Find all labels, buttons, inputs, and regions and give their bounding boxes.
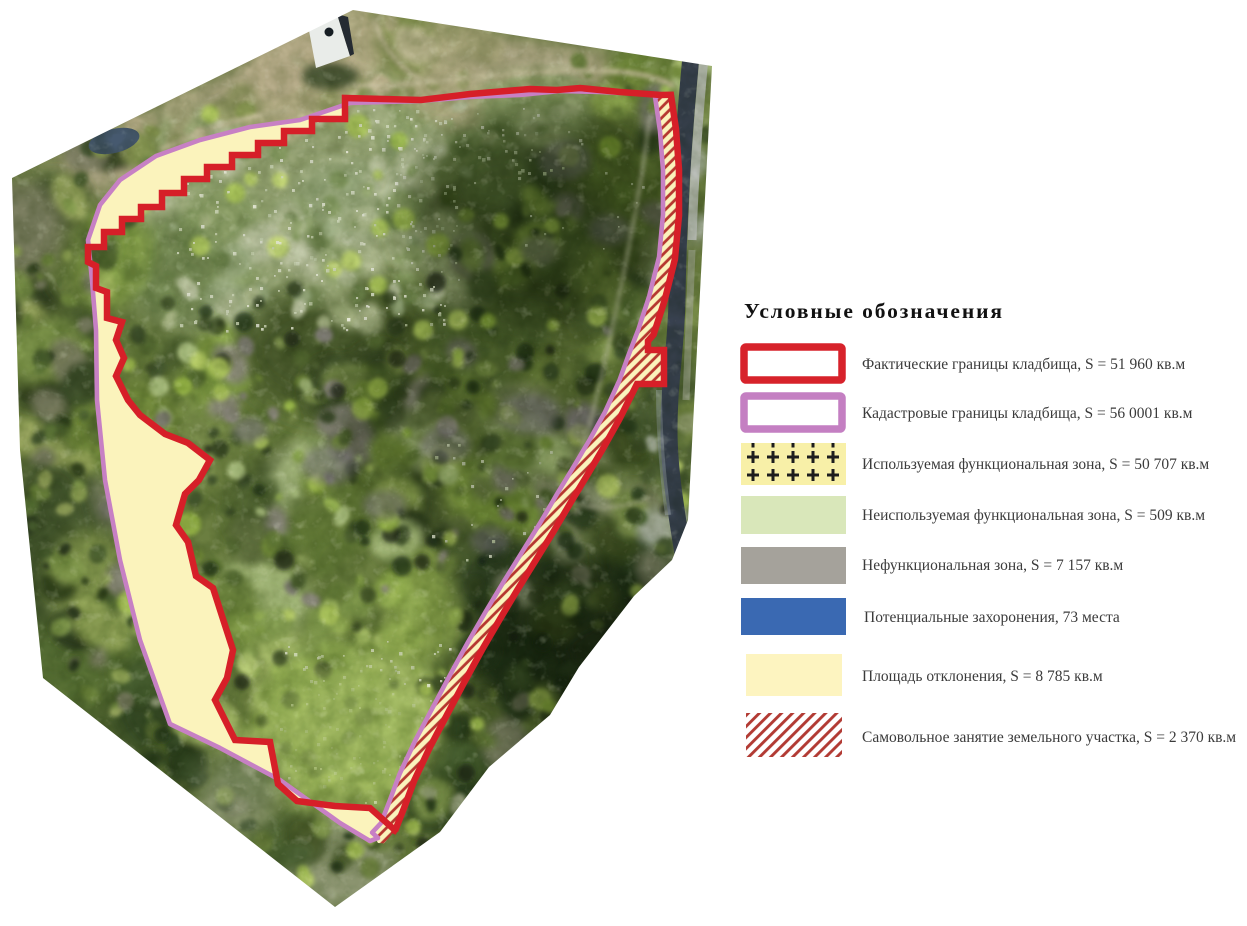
svg-text:Неиспользуемая функциональная: Неиспользуемая функциональная зона, S = …	[862, 507, 1205, 524]
svg-text:Условные обозначения: Условные обозначения	[744, 299, 1004, 323]
svg-text:Потенциальные захоронения, 73: Потенциальные захоронения, 73 места	[864, 609, 1120, 626]
svg-text:Площадь отклонения, S = 8 785: Площадь отклонения, S = 8 785 кв.м	[862, 668, 1103, 685]
svg-text:Кадастровые границы кладбища,: Кадастровые границы кладбища, S = 56 000…	[862, 405, 1193, 422]
svg-text:Самовольное занятие земельного: Самовольное занятие земельного участка, …	[862, 729, 1236, 746]
svg-text:Используемая функциональная зо: Используемая функциональная зона, S = 50…	[862, 456, 1209, 473]
svg-text:Фактические границы кладбища,: Фактические границы кладбища, S = 51 960…	[862, 356, 1185, 373]
svg-text:Нефункциональная зона, S = 7 1: Нефункциональная зона, S = 7 157 кв.м	[862, 557, 1123, 574]
